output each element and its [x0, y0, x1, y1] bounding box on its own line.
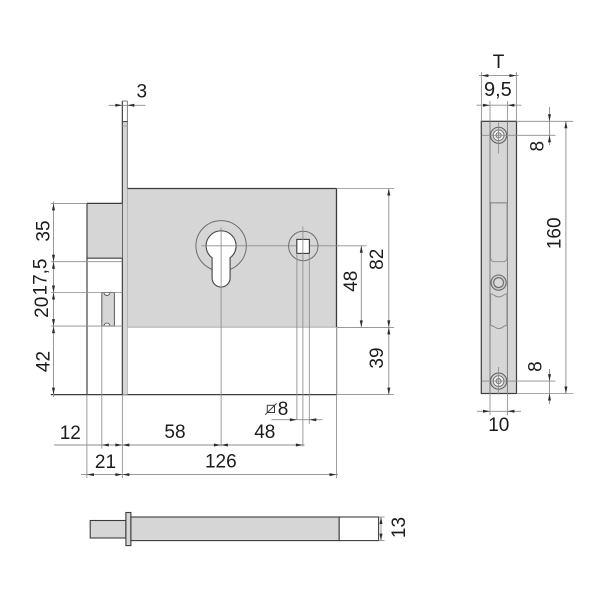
svg-text:10: 10	[488, 415, 509, 436]
svg-text:160: 160	[544, 217, 565, 249]
svg-text:8: 8	[278, 399, 289, 420]
svg-text:T: T	[493, 52, 505, 73]
svg-text:20: 20	[32, 297, 53, 318]
svg-text:12: 12	[60, 423, 81, 444]
svg-text:39: 39	[367, 347, 388, 368]
svg-text:82: 82	[367, 249, 388, 270]
svg-text:48: 48	[254, 422, 275, 443]
svg-text:17,5: 17,5	[30, 259, 51, 296]
svg-text:42: 42	[34, 351, 55, 372]
svg-text:58: 58	[164, 422, 185, 443]
svg-text:35: 35	[33, 220, 54, 241]
svg-text:126: 126	[205, 452, 237, 473]
svg-text:3: 3	[137, 82, 148, 103]
svg-text:8: 8	[526, 361, 547, 372]
svg-text:21: 21	[95, 452, 116, 473]
svg-text:48: 48	[341, 271, 362, 292]
svg-text:8: 8	[528, 141, 549, 152]
svg-text:13: 13	[389, 517, 410, 538]
svg-text:9,5: 9,5	[484, 79, 512, 101]
